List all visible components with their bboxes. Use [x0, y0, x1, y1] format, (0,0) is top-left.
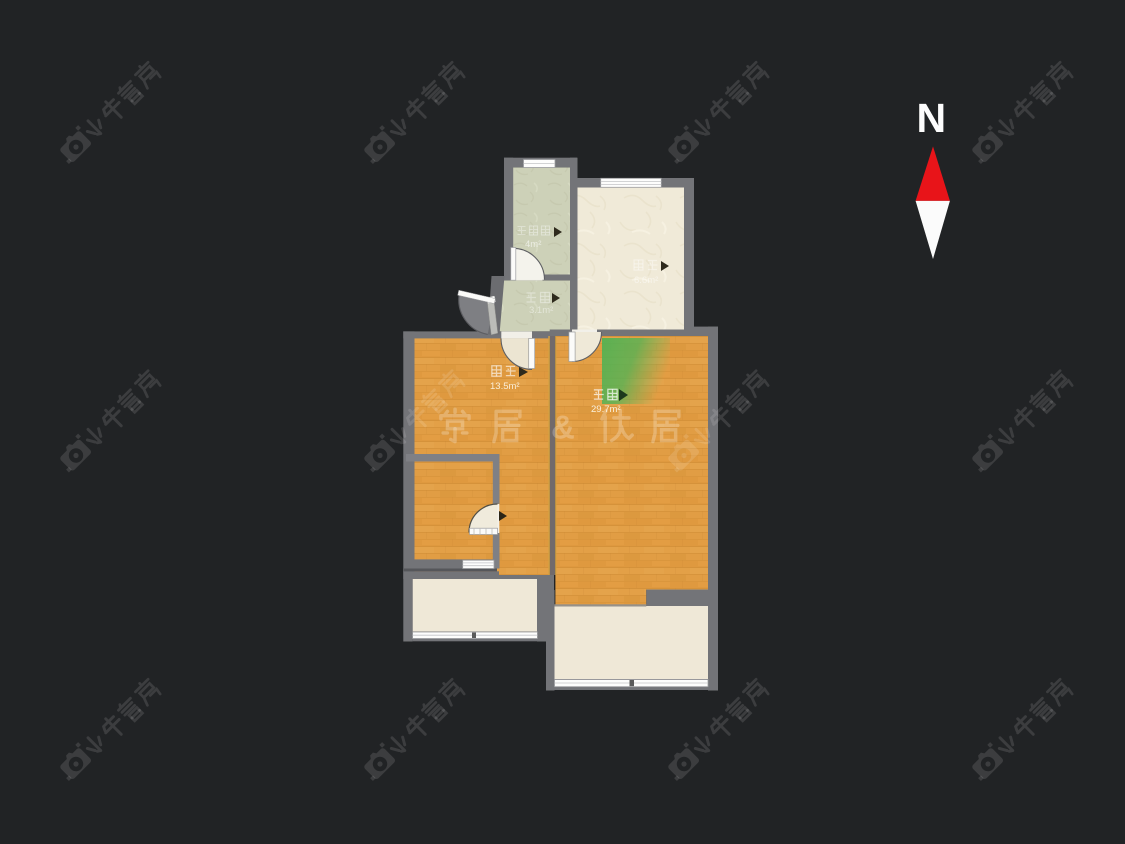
svg-text:&: &	[551, 409, 575, 446]
